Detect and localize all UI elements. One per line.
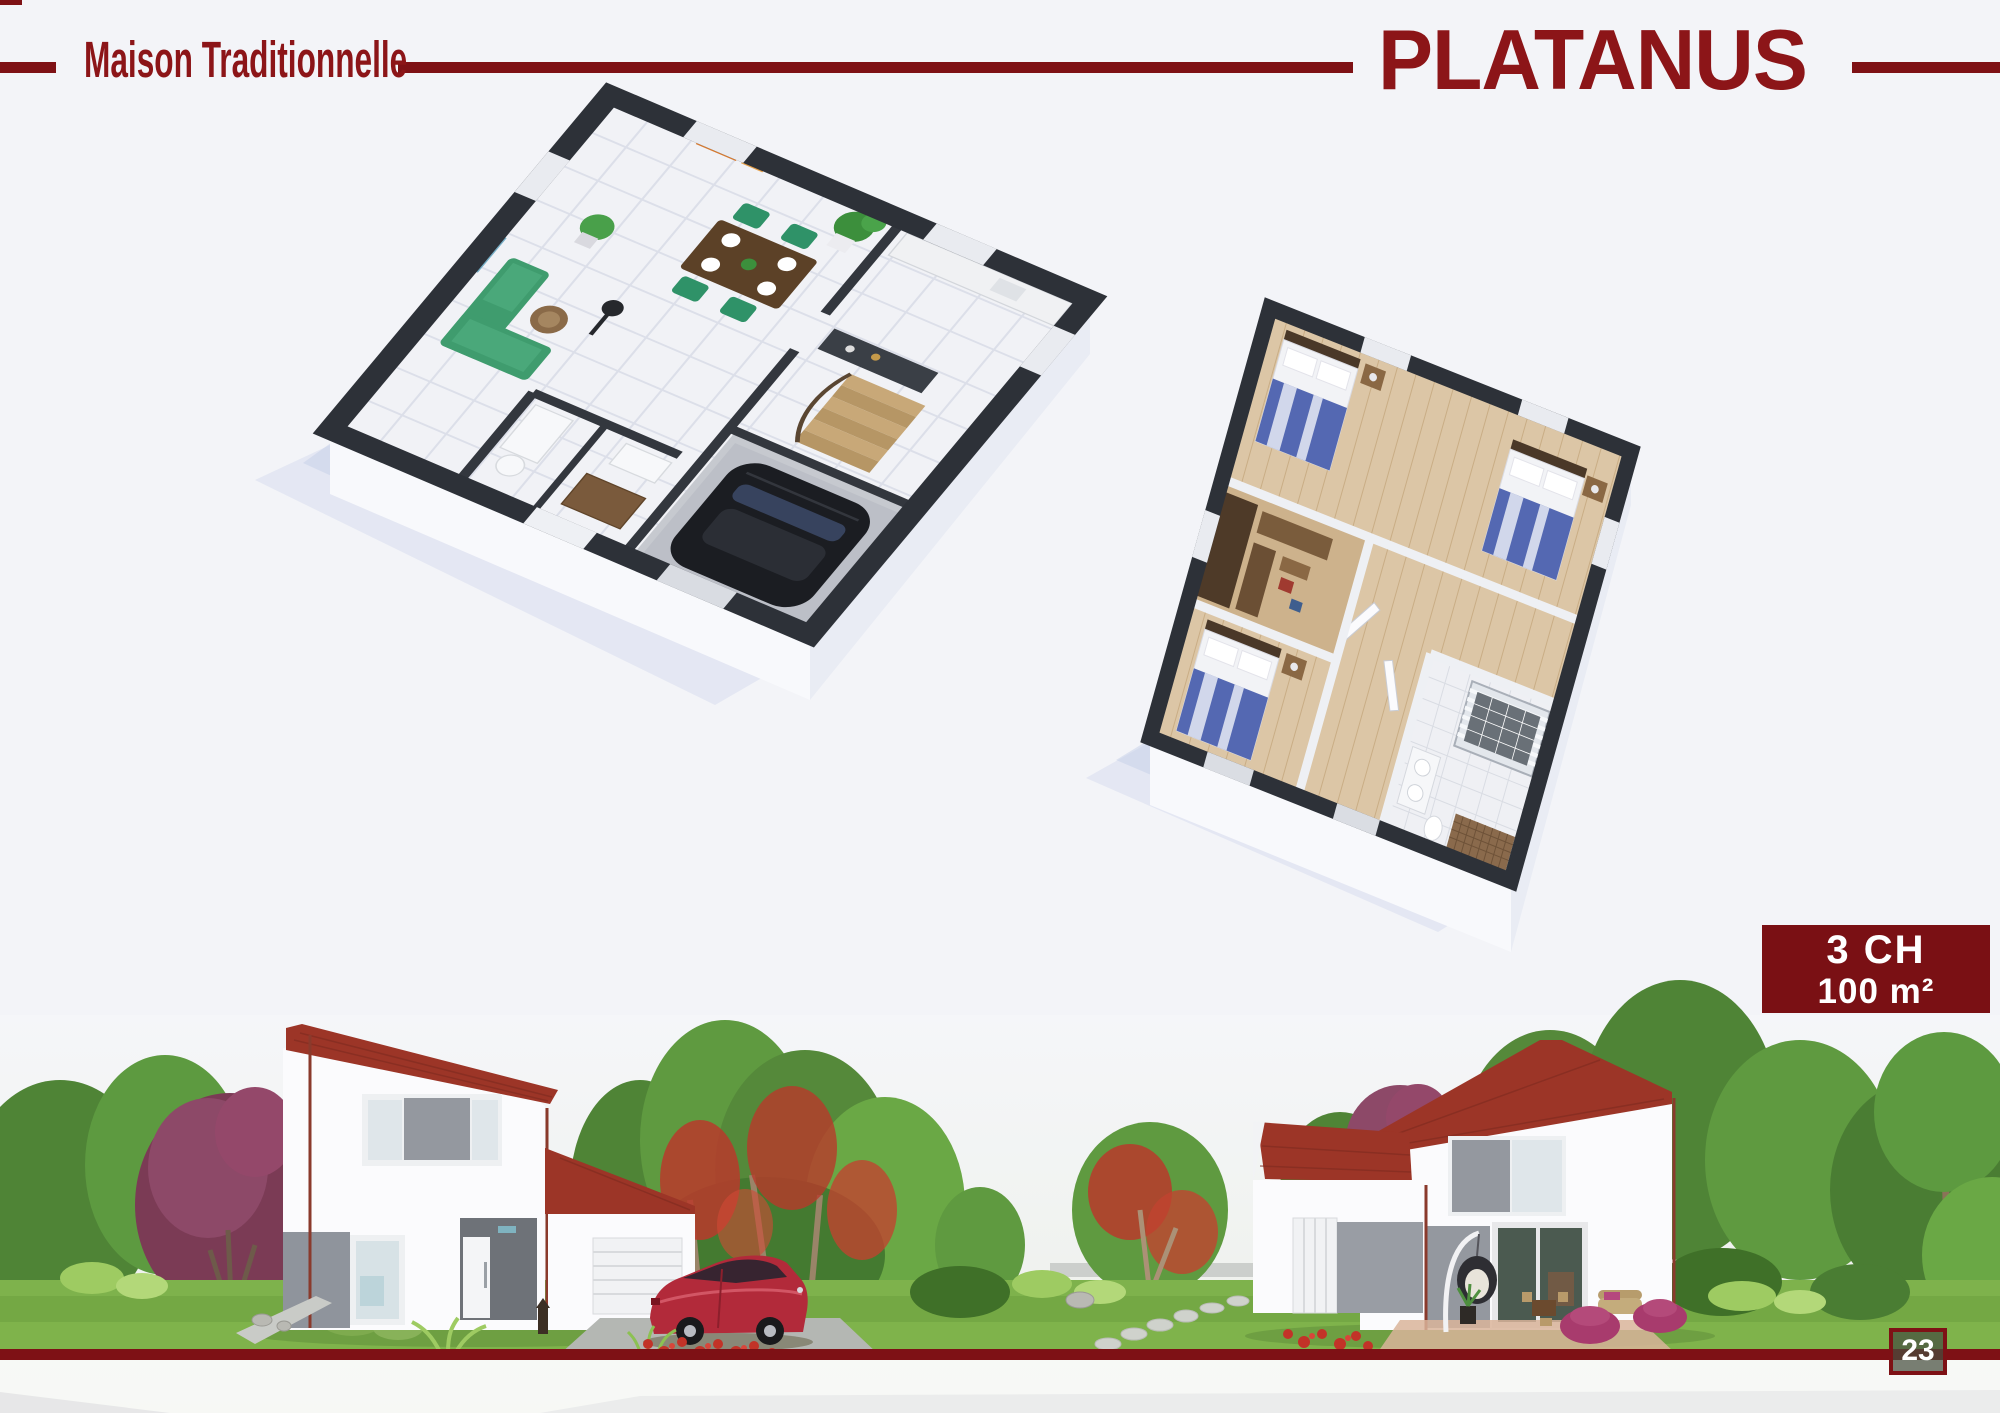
top-edge-rule xyxy=(0,0,22,5)
footer-accent-bar xyxy=(0,1349,2000,1360)
header-rule-left xyxy=(0,62,56,73)
series-title: Maison Traditionnelle xyxy=(84,34,407,85)
header-rule-middle xyxy=(398,62,1353,73)
upper-floor-3d-plan xyxy=(1086,308,1631,952)
spec-badge: 3 CH 100 m² xyxy=(1762,925,1990,1013)
exterior-garden-render xyxy=(0,980,2000,1413)
brochure-page: Maison Traditionnelle PLATANUS 3 CH 100 … xyxy=(0,0,2000,1413)
model-name-title: PLATANUS xyxy=(1378,18,1807,103)
spec-bedrooms: 3 CH xyxy=(1762,926,1990,974)
page-number-badge: 23 xyxy=(1889,1328,1947,1375)
spec-area: 100 m² xyxy=(1762,974,1990,1010)
header-rule-right xyxy=(1852,62,2000,73)
page-artwork xyxy=(0,0,2000,1413)
ground-floor-3d-plan xyxy=(255,95,1090,705)
